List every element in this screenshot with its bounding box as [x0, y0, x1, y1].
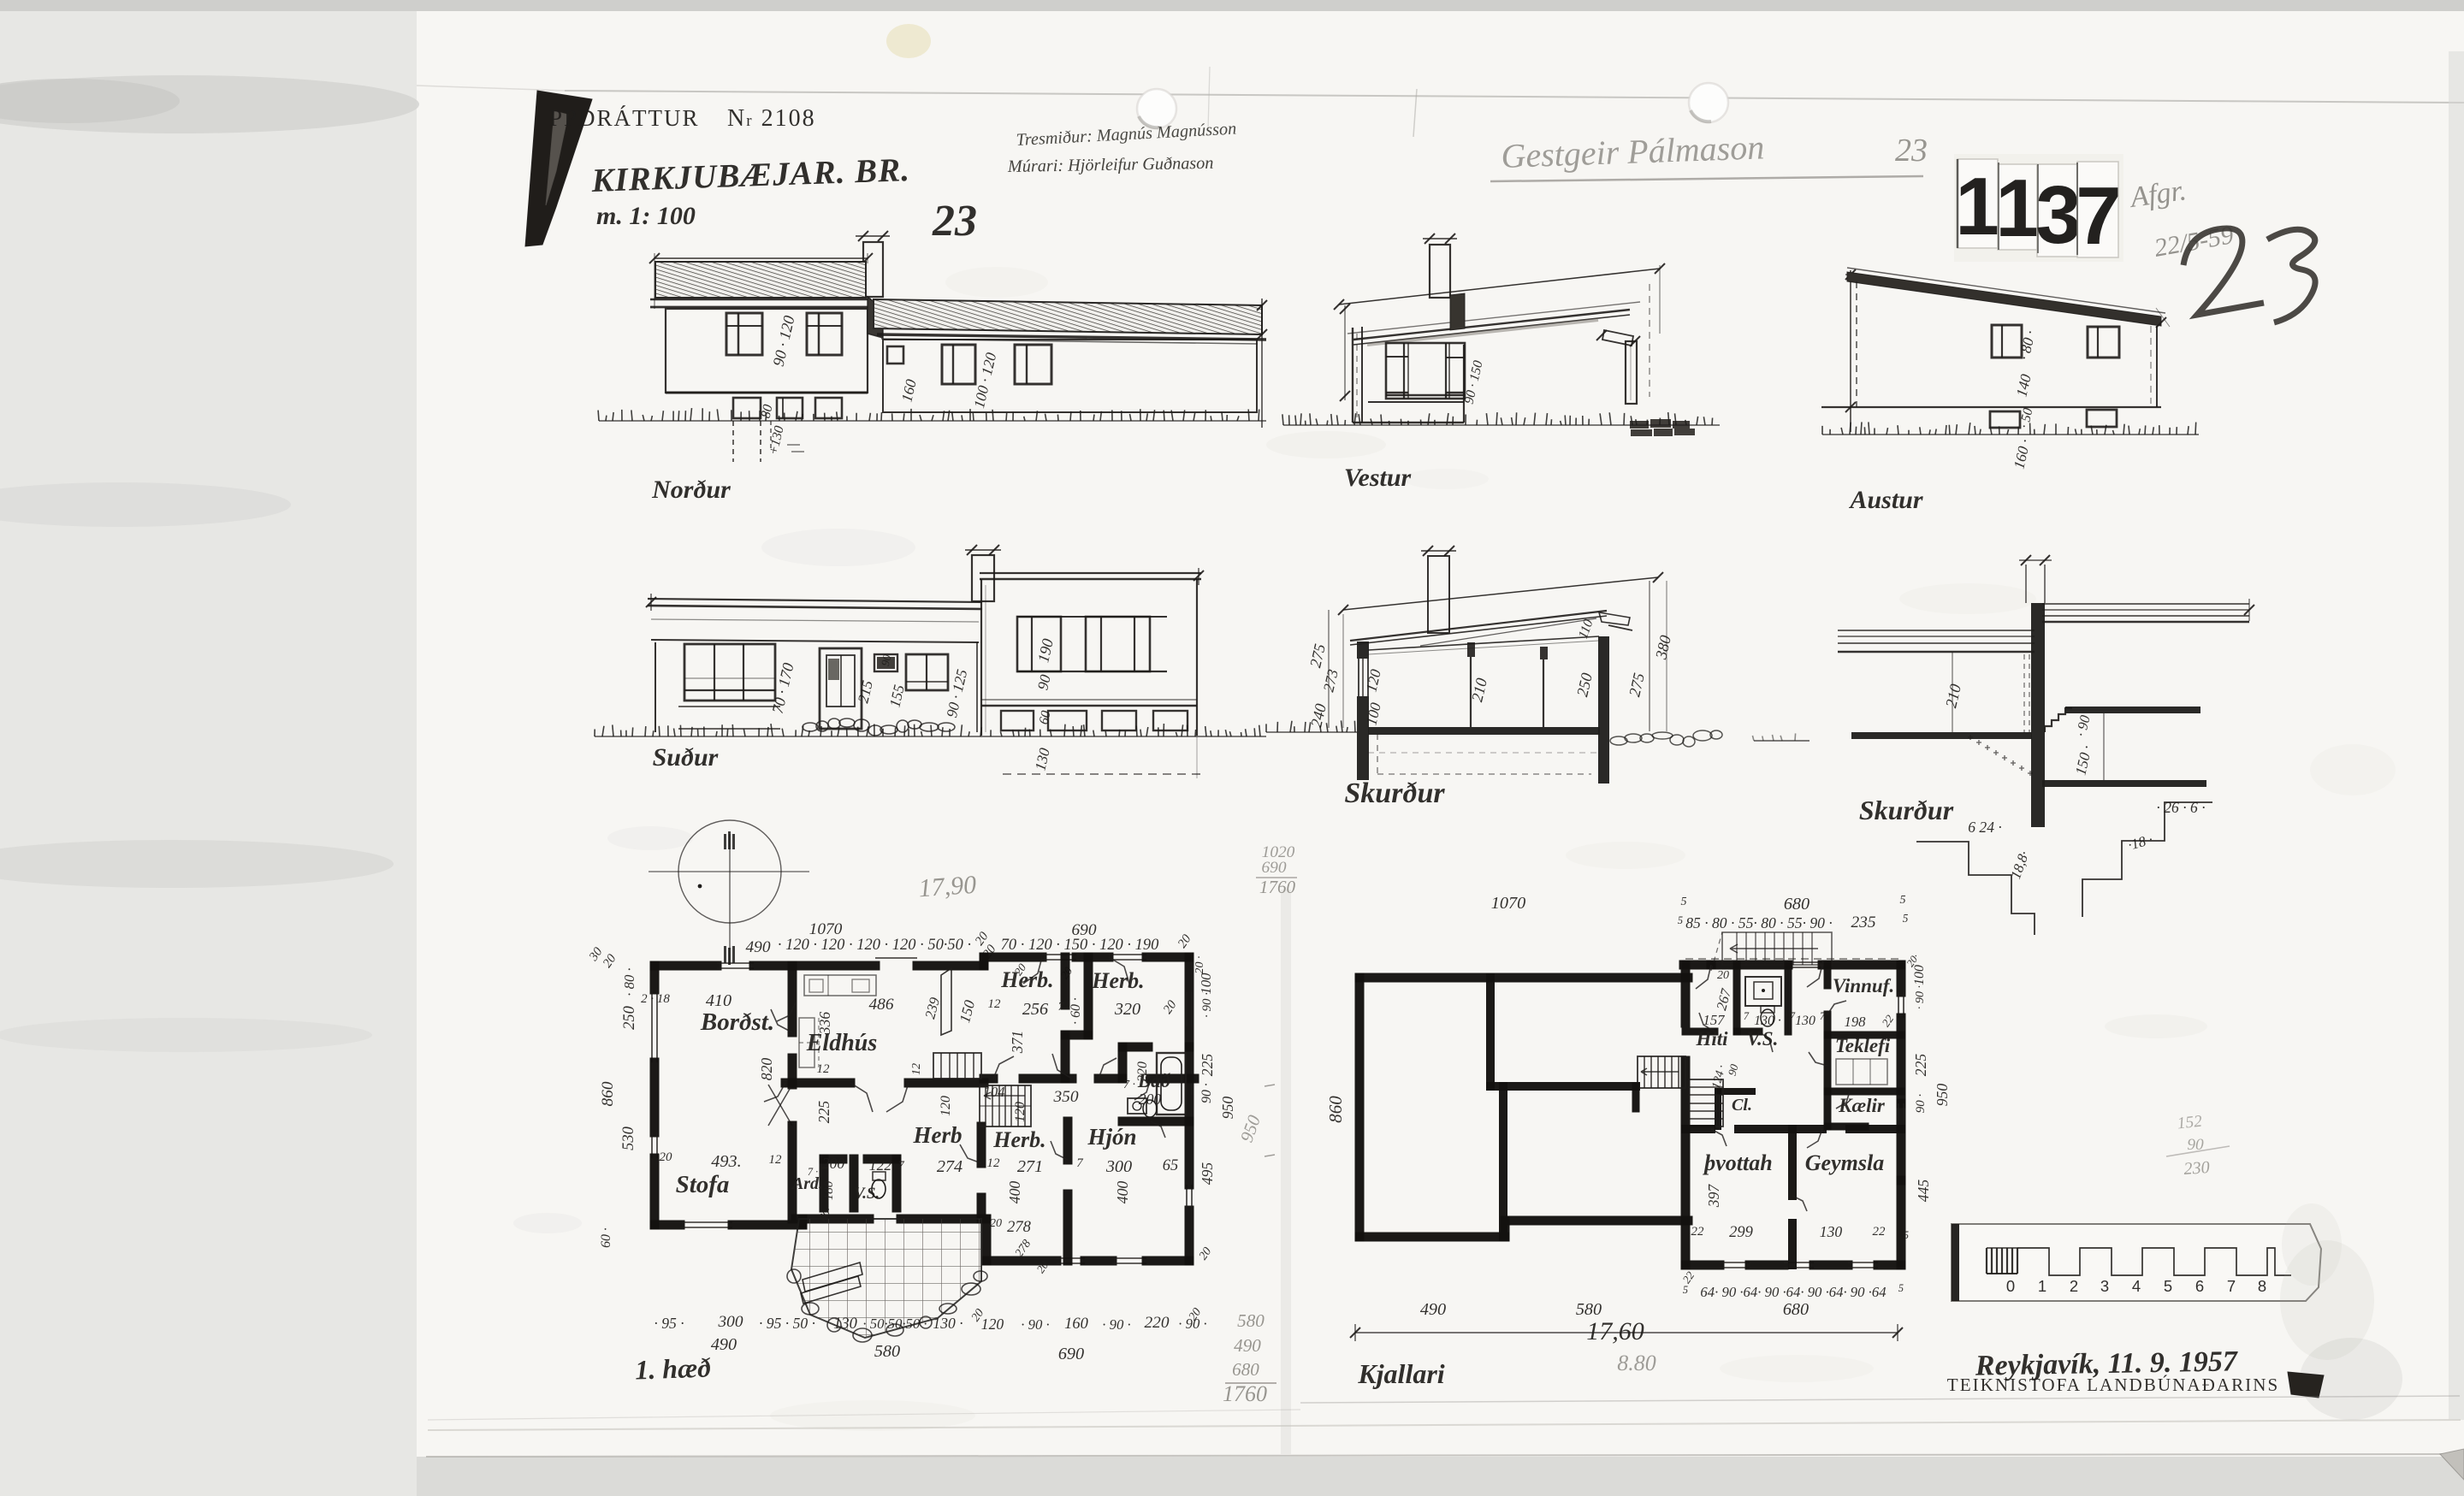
svg-text:6 24 ·: 6 24 · [1968, 819, 2002, 836]
svg-text:5: 5 [1680, 895, 1686, 908]
svg-text:3: 3 [2100, 1277, 2109, 1295]
svg-text:120: 120 [939, 1096, 953, 1116]
svg-text:12: 12 [817, 1062, 830, 1076]
svg-text:235: 235 [1851, 914, 1875, 931]
svg-text:130 ·: 130 · [933, 1315, 962, 1332]
svg-text:7: 7 [1076, 1156, 1083, 1170]
svg-text:120: 120 [981, 1316, 1004, 1333]
svg-text:495: 495 [1199, 1162, 1216, 1186]
svg-text:580: 580 [1576, 1300, 1602, 1319]
svg-text:5: 5 [1678, 914, 1683, 926]
svg-text:690: 690 [1261, 859, 1286, 877]
svg-text:180: 180 [822, 1180, 836, 1200]
svg-text:220: 220 [1135, 1061, 1150, 1082]
svg-text:17,60: 17,60 [1586, 1317, 1644, 1345]
svg-text:Borðst.: Borðst. [700, 1008, 774, 1036]
svg-text:PPDRÁTTUR: PPDRÁTTUR [549, 105, 700, 131]
svg-text:271: 271 [1017, 1157, 1043, 1176]
svg-text:Geymsla: Geymsla [1805, 1150, 1884, 1175]
svg-text:5: 5 [1903, 912, 1909, 925]
svg-text:680: 680 [1784, 895, 1809, 914]
svg-text:220: 220 [1144, 1314, 1169, 1332]
svg-text:· 90 ·: · 90 · [1913, 985, 1927, 1009]
svg-text:274: 274 [937, 1157, 962, 1176]
svg-text:490: 490 [1420, 1300, 1446, 1319]
svg-text:65: 65 [1163, 1156, 1178, 1174]
svg-text:· 90 ·: · 90 · [1021, 1316, 1049, 1333]
svg-text:680: 680 [1232, 1359, 1259, 1380]
svg-text:7 ·: 7 · [808, 1166, 818, 1178]
svg-text:7: 7 [1744, 1010, 1750, 1022]
svg-text:· 95 ·: · 95 · [654, 1315, 684, 1332]
svg-text:1070: 1070 [1491, 894, 1525, 913]
svg-text:Nr 2108: Nr 2108 [727, 105, 816, 132]
svg-text:397: 397 [1705, 1184, 1722, 1209]
svg-text:7: 7 [897, 1159, 904, 1173]
svg-text:1760: 1760 [1259, 877, 1296, 897]
svg-text:445: 445 [1915, 1180, 1932, 1203]
svg-text:8: 8 [2258, 1277, 2266, 1295]
svg-text:Teklefi: Teklefi [1835, 1035, 1891, 1056]
svg-text:299: 299 [1729, 1223, 1753, 1240]
svg-text:Austur: Austur [1848, 486, 1922, 514]
svg-text:680: 680 [1783, 1300, 1809, 1319]
svg-text:Hjón: Hjón [1087, 1124, 1136, 1150]
svg-text:Suður: Suður [653, 743, 719, 772]
svg-text:20 ·: 20 · [1193, 955, 1206, 973]
svg-text:5: 5 [1683, 1284, 1688, 1296]
svg-text:12: 12 [988, 997, 1001, 1011]
svg-text:64· 90 ·64· 90 ·64· 90 ·64· 90: 64· 90 ·64· 90 ·64· 90 ·64· 90 ·64 [1700, 1284, 1886, 1300]
svg-text:2: 2 [2070, 1277, 2078, 1295]
svg-text:Kjallari: Kjallari [1357, 1358, 1444, 1389]
svg-text:225: 225 [1912, 1054, 1929, 1077]
svg-text:70 · 120 · 150 · 120 · 190: 70 · 120 · 150 · 120 · 190 [1001, 936, 1159, 953]
svg-text:860: 860 [1325, 1096, 1346, 1123]
svg-text:130 ·: 130 · [1754, 1014, 1781, 1028]
svg-text:· 50·50·50 ·: · 50·50·50 · [862, 1316, 927, 1332]
svg-text:Cl.: Cl. [1732, 1096, 1752, 1115]
svg-text:Hiti: Hiti [1695, 1028, 1728, 1050]
svg-text:300: 300 [1105, 1157, 1132, 1176]
svg-text:160: 160 [1064, 1315, 1088, 1332]
svg-text:90 ·: 90 · [1914, 1094, 1928, 1113]
svg-text:198: 198 [1844, 1014, 1866, 1030]
svg-text:60 ·: 60 · [599, 1227, 613, 1248]
svg-text:7: 7 [1790, 1010, 1796, 1022]
svg-text:· 90 ·: · 90 · [1102, 1316, 1130, 1333]
svg-text:1. hæð: 1. hæð [635, 1351, 712, 1385]
svg-text:130: 130 [1820, 1223, 1843, 1240]
svg-text:100: 100 [1198, 973, 1214, 995]
svg-text:690: 690 [1058, 1345, 1084, 1363]
svg-text:3: 3 [2035, 169, 2081, 261]
svg-text:5: 5 [1899, 893, 1905, 907]
svg-text:950: 950 [1219, 1097, 1236, 1120]
svg-text:Herb: Herb [913, 1122, 962, 1148]
svg-text:7: 7 [2076, 170, 2121, 262]
svg-text:22: 22 [1873, 1225, 1886, 1239]
svg-text:6: 6 [2195, 1277, 2204, 1295]
svg-text:580: 580 [1237, 1310, 1265, 1331]
svg-text:7 ·: 7 · [1123, 1078, 1135, 1091]
svg-text:þvottah: þvottah [1702, 1150, 1772, 1175]
svg-text:· 95 · 50 ·: · 95 · 50 · [759, 1315, 815, 1332]
svg-text:20: 20 [660, 1150, 672, 1164]
svg-text:22: 22 [1691, 1225, 1704, 1239]
svg-text:5: 5 [2164, 1277, 2172, 1295]
svg-text:7: 7 [2227, 1277, 2236, 1295]
svg-text:17,90: 17,90 [918, 871, 978, 903]
svg-text:12: 12 [987, 1156, 1000, 1170]
svg-text:0: 0 [2006, 1277, 2015, 1295]
svg-text:Herb.: Herb. [992, 1127, 1045, 1152]
svg-text:Vinnuf.: Vinnuf. [1833, 975, 1894, 996]
svg-text:Skurður: Skurður [1344, 778, 1445, 809]
svg-text:12: 12 [909, 1063, 923, 1075]
svg-text:Vestur: Vestur [1344, 464, 1412, 492]
svg-text:1: 1 [2038, 1277, 2046, 1295]
svg-text:120: 120 [1013, 1102, 1028, 1122]
svg-text:410: 410 [706, 991, 731, 1010]
svg-text:200: 200 [822, 1155, 845, 1172]
svg-text:V.S.: V.S. [854, 1185, 880, 1203]
svg-text:Stofa: Stofa [676, 1171, 730, 1198]
svg-text:256: 256 [1022, 1000, 1049, 1019]
svg-text:950: 950 [1934, 1084, 1951, 1107]
svg-text:TEIKNISTOFA LANDBÚNAÐARINS: TEIKNISTOFA LANDBÚNAÐARINS [1947, 1375, 2279, 1395]
svg-text:320: 320 [1114, 1000, 1140, 1019]
svg-text:225: 225 [1199, 1054, 1216, 1077]
svg-text:7: 7 [1057, 1000, 1064, 1014]
svg-text:1: 1 [1955, 161, 2000, 252]
svg-text:· 26 · 6 ·: · 26 · 6 · [2156, 799, 2205, 816]
svg-text:Kælir: Kælir [1838, 1095, 1886, 1116]
svg-text:23: 23 [1895, 133, 1928, 169]
svg-text:104: 104 [983, 1084, 1004, 1100]
svg-text:200: 200 [1139, 1091, 1162, 1108]
svg-text:580: 580 [874, 1342, 900, 1361]
svg-text:490: 490 [745, 938, 770, 956]
svg-text:336: 336 [816, 1012, 833, 1036]
svg-text:· 90 ·: · 90 · [1200, 992, 1214, 1018]
svg-text:400: 400 [1114, 1181, 1131, 1204]
svg-text:90 ·: 90 · [1199, 1083, 1214, 1103]
svg-text:130: 130 [1795, 1014, 1815, 1028]
svg-text:· 120 · 120 · 120 · 120 · 50·5: · 120 · 120 · 120 · 120 · 50·50 · [778, 936, 971, 953]
svg-text:486: 486 [868, 996, 893, 1014]
svg-text:225: 225 [815, 1101, 832, 1124]
svg-text:5: 5 [1898, 1282, 1904, 1294]
svg-text:400: 400 [1006, 1181, 1023, 1204]
svg-text:Múrari: Hjörleifur Guðnason: Múrari: Hjörleifur Guðnason [1007, 154, 1214, 176]
svg-text:20: 20 [1717, 968, 1729, 982]
svg-text:Herb.: Herb. [1000, 967, 1053, 992]
svg-text:V.S.: V.S. [1747, 1028, 1779, 1050]
svg-text:1: 1 [1995, 163, 2040, 254]
svg-text:12: 12 [769, 1153, 782, 1167]
svg-text:5: 5 [1904, 1229, 1909, 1241]
svg-text:860: 860 [599, 1081, 617, 1106]
svg-text:490: 490 [1234, 1335, 1261, 1356]
svg-text:230: 230 [2183, 1158, 2211, 1179]
svg-text:Herb.: Herb. [1091, 968, 1144, 993]
svg-text:820: 820 [758, 1058, 775, 1081]
svg-text:300: 300 [717, 1313, 743, 1331]
svg-text:490: 490 [711, 1335, 737, 1354]
svg-text:250: 250 [620, 1006, 637, 1030]
svg-text:130: 130 [833, 1315, 857, 1332]
svg-text:7: 7 [1820, 1010, 1826, 1022]
svg-text:122: 122 [869, 1156, 892, 1174]
svg-text:85 · 80 · 55· 80 · 55· 90 ·: 85 · 80 · 55· 80 · 55· 90 · [1685, 914, 1833, 931]
svg-text:350: 350 [1052, 1088, 1078, 1106]
svg-text:Skurður: Skurður [1859, 795, 1954, 825]
svg-text:23: 23 [932, 197, 977, 245]
svg-text:· 60 ·: · 60 · [1069, 997, 1083, 1025]
svg-text:530: 530 [619, 1126, 637, 1150]
svg-text:371: 371 [1009, 1031, 1026, 1054]
svg-text:Norður: Norður [651, 476, 731, 504]
svg-text:152: 152 [2177, 1113, 2203, 1133]
svg-text:1760: 1760 [1223, 1381, 1267, 1406]
svg-text:m. 1: 100: m. 1: 100 [596, 202, 696, 230]
svg-text:8.80: 8.80 [1617, 1351, 1656, 1375]
svg-text:278: 278 [1007, 1218, 1031, 1235]
svg-text:493.: 493. [711, 1152, 741, 1171]
svg-text:20: 20 [990, 1216, 1002, 1230]
svg-text:· 80 ·: · 80 · [621, 967, 637, 996]
svg-text:4: 4 [2132, 1277, 2141, 1295]
